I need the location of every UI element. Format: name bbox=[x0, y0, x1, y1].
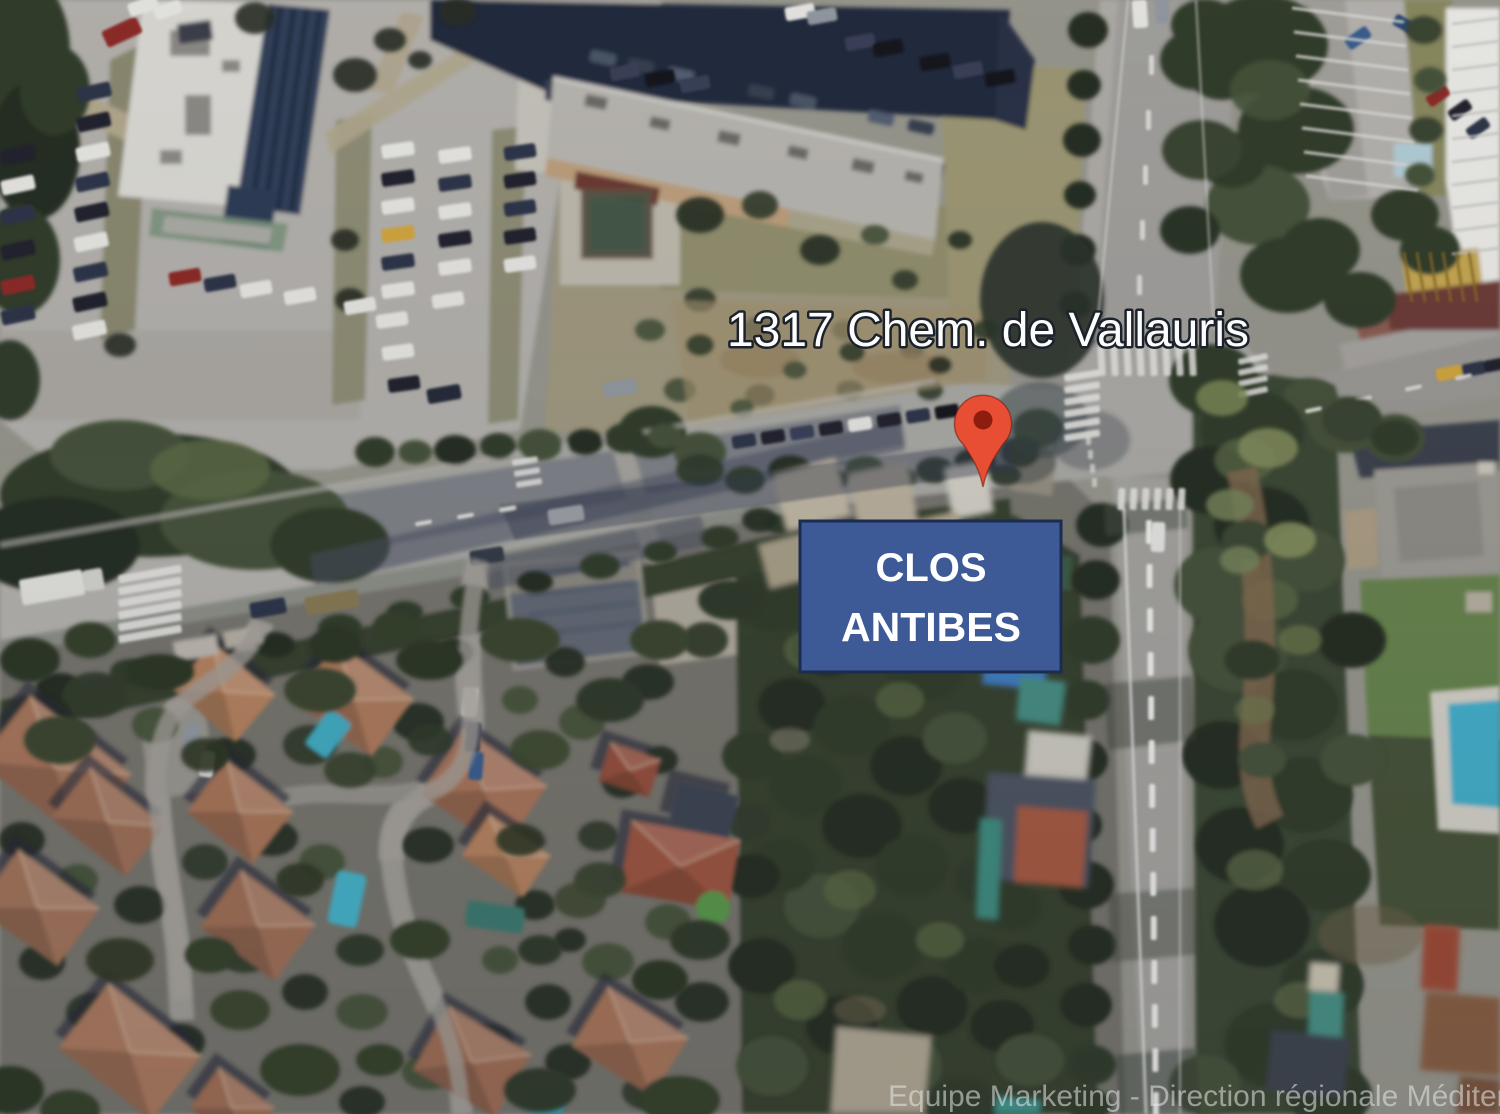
svg-text:Equipe Marketing - Direction r: Equipe Marketing - Direction régionale M… bbox=[888, 1080, 1500, 1113]
svg-text:1317 Chem. de Vallauris: 1317 Chem. de Vallauris bbox=[727, 304, 1249, 357]
svg-text:CLOS: CLOS bbox=[875, 546, 986, 590]
svg-text:ANTIBES: ANTIBES bbox=[841, 604, 1021, 650]
